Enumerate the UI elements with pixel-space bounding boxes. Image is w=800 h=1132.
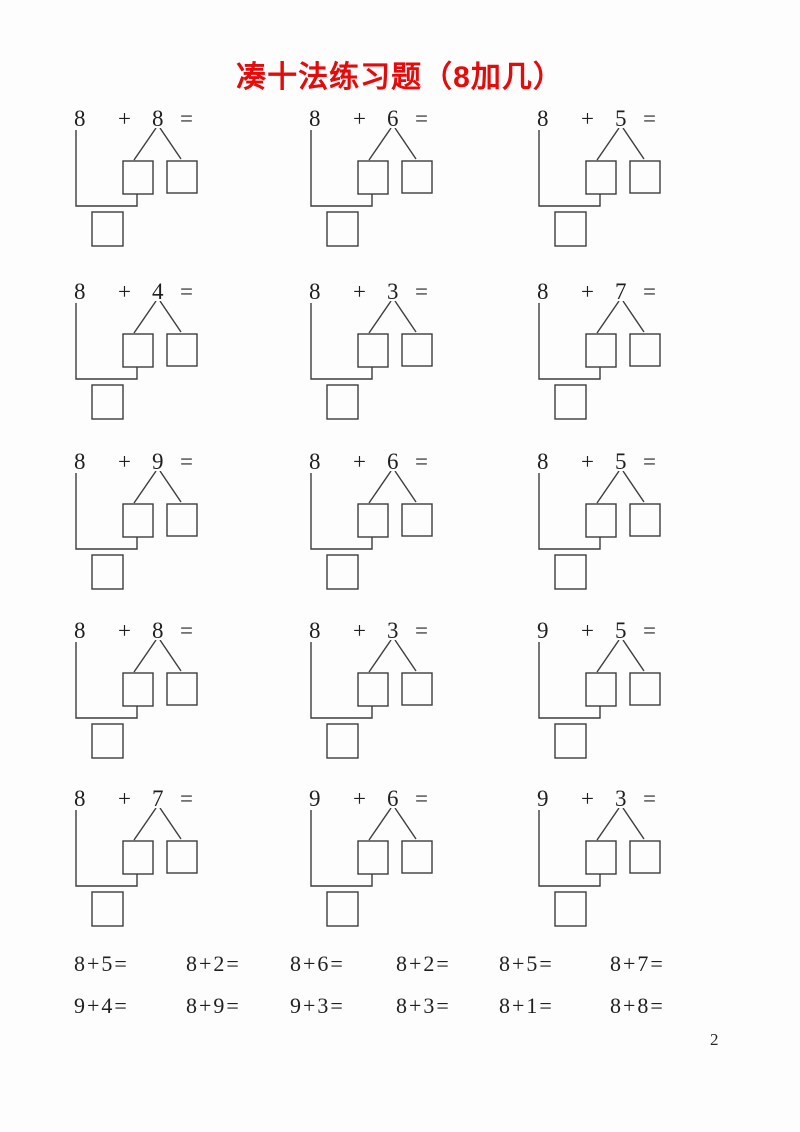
decomposition-box-right bbox=[402, 161, 432, 193]
practice-equation: 8+2= bbox=[186, 953, 241, 975]
decomposition-box-left bbox=[586, 161, 616, 194]
problem-cell: 8 + 7 = bbox=[74, 786, 274, 956]
split-line-left bbox=[597, 471, 619, 503]
decomposition-box-left bbox=[586, 673, 616, 706]
decomposition-diagram bbox=[309, 301, 449, 423]
split-line-right bbox=[395, 301, 416, 332]
problem-cell: 8 + 6 = bbox=[309, 106, 509, 276]
problem-cell: 9 + 6 = bbox=[309, 786, 509, 956]
make-ten-box bbox=[92, 385, 123, 419]
split-line-left bbox=[369, 808, 391, 840]
decomposition-box-right bbox=[402, 841, 432, 873]
practice-equation: 8+8= bbox=[610, 995, 665, 1017]
decomposition-box-left bbox=[358, 504, 388, 537]
make-ten-box bbox=[327, 212, 358, 246]
decomposition-diagram bbox=[309, 128, 449, 250]
split-line-left bbox=[369, 301, 391, 333]
decomposition-box-right bbox=[167, 841, 197, 873]
split-line-left bbox=[597, 640, 619, 672]
practice-equation: 8+5= bbox=[499, 953, 554, 975]
make-ten-box bbox=[555, 555, 586, 589]
decomposition-box-left bbox=[358, 161, 388, 194]
decomposition-diagram bbox=[74, 128, 214, 250]
decomposition-diagram bbox=[74, 301, 214, 423]
split-line-right bbox=[395, 640, 416, 671]
make-ten-box bbox=[555, 724, 586, 758]
problem-cell: 9 + 5 = bbox=[537, 618, 737, 788]
decomposition-box-left bbox=[586, 841, 616, 874]
decomposition-diagram bbox=[74, 640, 214, 762]
split-line-left bbox=[134, 128, 156, 160]
decomposition-diagram bbox=[537, 808, 677, 930]
decomposition-box-right bbox=[402, 673, 432, 705]
split-line-right bbox=[395, 808, 416, 839]
decomposition-diagram bbox=[309, 640, 449, 762]
decomposition-box-left bbox=[123, 504, 153, 537]
problem-cell: 8 + 8 = bbox=[74, 618, 274, 788]
decomposition-diagram bbox=[537, 640, 677, 762]
split-line-right bbox=[623, 808, 644, 839]
page-number: 2 bbox=[710, 1030, 719, 1050]
make-ten-box bbox=[92, 892, 123, 926]
make-ten-box bbox=[92, 212, 123, 246]
decomposition-box-left bbox=[358, 841, 388, 874]
split-line-left bbox=[369, 471, 391, 503]
split-line-right bbox=[160, 640, 181, 671]
make-ten-box bbox=[327, 724, 358, 758]
practice-equation: 8+3= bbox=[396, 995, 451, 1017]
worksheet-page: 凑十法练习题（8加几） 8 + 8 = 8 + 6 = 8 + 5 = bbox=[0, 0, 800, 1132]
split-line-right bbox=[395, 471, 416, 502]
split-line-right bbox=[395, 128, 416, 159]
decomposition-box-left bbox=[123, 841, 153, 874]
practice-equation: 8+9= bbox=[186, 995, 241, 1017]
decomposition-box-right bbox=[630, 841, 660, 873]
make-ten-box bbox=[327, 892, 358, 926]
problem-cell: 8 + 7 = bbox=[537, 279, 737, 449]
decomposition-diagram bbox=[309, 471, 449, 593]
problem-cell: 8 + 9 = bbox=[74, 449, 274, 619]
split-line-left bbox=[134, 471, 156, 503]
split-line-left bbox=[597, 808, 619, 840]
make-ten-box bbox=[92, 724, 123, 758]
decomposition-diagram bbox=[537, 128, 677, 250]
decomposition-diagram bbox=[74, 808, 214, 930]
problem-cell: 8 + 8 = bbox=[74, 106, 274, 276]
decomposition-diagram bbox=[309, 808, 449, 930]
split-line-right bbox=[623, 640, 644, 671]
practice-equation: 9+4= bbox=[74, 995, 129, 1017]
split-line-left bbox=[369, 128, 391, 160]
decomposition-box-right bbox=[167, 161, 197, 193]
decomposition-box-right bbox=[630, 161, 660, 193]
decomposition-diagram bbox=[537, 301, 677, 423]
decomposition-box-left bbox=[358, 334, 388, 367]
practice-equation: 8+6= bbox=[290, 953, 345, 975]
problem-cell: 8 + 5 = bbox=[537, 449, 737, 619]
split-line-left bbox=[597, 128, 619, 160]
split-line-right bbox=[160, 301, 181, 332]
problem-cell: 8 + 4 = bbox=[74, 279, 274, 449]
practice-equation: 9+3= bbox=[290, 995, 345, 1017]
make-ten-box bbox=[92, 555, 123, 589]
make-ten-box bbox=[555, 212, 586, 246]
split-line-left bbox=[134, 808, 156, 840]
decomposition-box-right bbox=[402, 504, 432, 536]
decomposition-box-right bbox=[630, 673, 660, 705]
split-line-right bbox=[623, 471, 644, 502]
split-line-right bbox=[160, 808, 181, 839]
make-ten-box bbox=[555, 892, 586, 926]
page-title: 凑十法练习题（8加几） bbox=[0, 52, 800, 96]
decomposition-box-left bbox=[586, 334, 616, 367]
split-line-left bbox=[369, 640, 391, 672]
decomposition-box-left bbox=[123, 673, 153, 706]
problem-cell: 8 + 3 = bbox=[309, 618, 509, 788]
problem-cell: 8 + 6 = bbox=[309, 449, 509, 619]
practice-equation: 8+1= bbox=[499, 995, 554, 1017]
practice-equation: 8+5= bbox=[74, 953, 129, 975]
decomposition-box-right bbox=[630, 334, 660, 366]
problem-cell: 8 + 5 = bbox=[537, 106, 737, 276]
split-line-left bbox=[134, 640, 156, 672]
make-ten-box bbox=[555, 385, 586, 419]
split-line-right bbox=[623, 301, 644, 332]
decomposition-box-right bbox=[167, 504, 197, 536]
decomposition-diagram bbox=[74, 471, 214, 593]
decomposition-box-left bbox=[123, 161, 153, 194]
decomposition-box-left bbox=[123, 334, 153, 367]
decomposition-box-left bbox=[586, 504, 616, 537]
decomposition-box-right bbox=[402, 334, 432, 366]
decomposition-diagram bbox=[537, 471, 677, 593]
practice-equation: 8+7= bbox=[610, 953, 665, 975]
make-ten-box bbox=[327, 385, 358, 419]
split-line-right bbox=[623, 128, 644, 159]
problem-cell: 9 + 3 = bbox=[537, 786, 737, 956]
problem-cell: 8 + 3 = bbox=[309, 279, 509, 449]
decomposition-box-right bbox=[630, 504, 660, 536]
split-line-right bbox=[160, 128, 181, 159]
decomposition-box-right bbox=[167, 673, 197, 705]
make-ten-box bbox=[327, 555, 358, 589]
decomposition-box-right bbox=[167, 334, 197, 366]
split-line-right bbox=[160, 471, 181, 502]
split-line-left bbox=[597, 301, 619, 333]
decomposition-box-left bbox=[358, 673, 388, 706]
split-line-left bbox=[134, 301, 156, 333]
practice-equation: 8+2= bbox=[396, 953, 451, 975]
